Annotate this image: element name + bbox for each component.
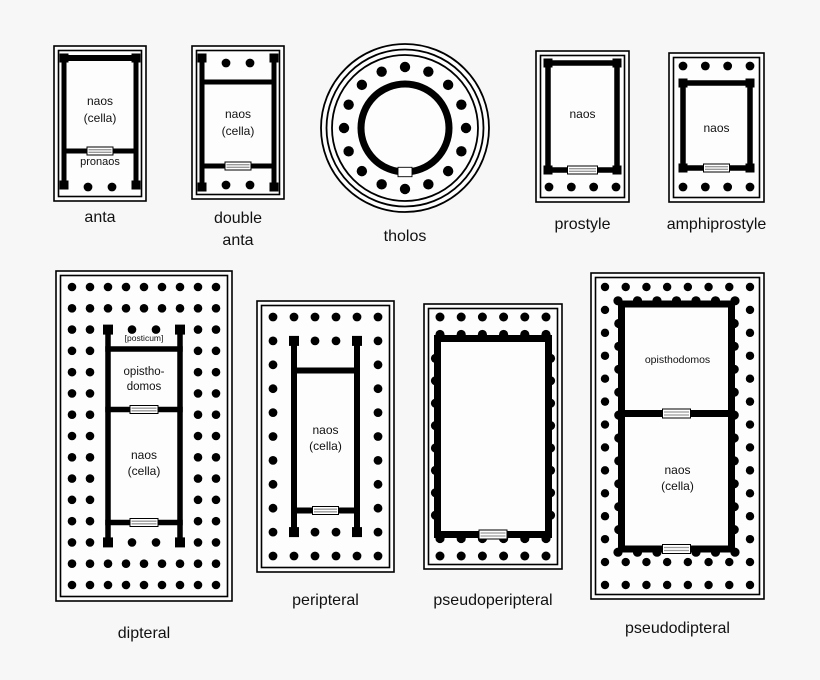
wall bbox=[747, 80, 753, 171]
column-dot bbox=[212, 432, 221, 441]
engaged-column bbox=[614, 365, 623, 374]
column-dot bbox=[68, 517, 77, 526]
engaged-column bbox=[541, 534, 550, 543]
column-dot bbox=[520, 313, 529, 322]
column-dot bbox=[84, 183, 93, 192]
engaged-column bbox=[499, 330, 508, 339]
column-dot bbox=[194, 432, 203, 441]
column-dot bbox=[601, 535, 609, 543]
engaged-column bbox=[541, 330, 550, 339]
column-dot bbox=[176, 304, 185, 313]
column-dot bbox=[68, 474, 77, 483]
column-dot bbox=[86, 496, 95, 505]
wall bbox=[728, 301, 735, 553]
engaged-column bbox=[613, 296, 622, 305]
engaged-column bbox=[652, 296, 661, 305]
plan-dipteral: [posticum] opistho- domos naos (cella) d… bbox=[55, 270, 233, 602]
column-dot bbox=[68, 559, 77, 568]
column-dot bbox=[612, 183, 621, 192]
door-opening bbox=[704, 164, 730, 172]
column-dot bbox=[212, 389, 221, 398]
column-dot bbox=[212, 538, 221, 547]
door-opening bbox=[313, 507, 339, 515]
column-dot bbox=[357, 80, 367, 90]
column-dot bbox=[212, 453, 221, 462]
column-dot bbox=[194, 368, 203, 377]
column-dot bbox=[128, 538, 137, 547]
column-dot bbox=[212, 559, 221, 568]
engaged-column bbox=[431, 511, 440, 520]
column-dot bbox=[478, 313, 487, 322]
column-dot bbox=[520, 552, 529, 561]
engaged-column bbox=[730, 319, 739, 328]
column-dot bbox=[68, 304, 77, 313]
caption-anta: anta bbox=[84, 207, 115, 229]
caption-prostyle: prostyle bbox=[554, 214, 610, 236]
wall bbox=[200, 56, 205, 190]
door-opening bbox=[225, 162, 251, 170]
engaged-column bbox=[730, 342, 739, 351]
pseudodipteral-plan-drawing bbox=[590, 272, 765, 600]
column-dot bbox=[246, 181, 255, 190]
engaged-column bbox=[691, 548, 700, 557]
column-dot bbox=[357, 166, 367, 176]
engaged-column bbox=[730, 479, 739, 488]
column-dot bbox=[176, 581, 185, 590]
engaged-column bbox=[431, 376, 440, 385]
door-opening bbox=[398, 167, 412, 176]
engaged-column bbox=[614, 479, 623, 488]
column-dot bbox=[746, 489, 754, 497]
column-dot bbox=[212, 496, 221, 505]
column-dot bbox=[68, 283, 77, 292]
column-dot bbox=[158, 304, 167, 313]
column-dot bbox=[194, 347, 203, 356]
column-dot bbox=[332, 337, 341, 346]
column-dot bbox=[663, 581, 671, 589]
column-dot bbox=[499, 313, 508, 322]
column-dot bbox=[212, 347, 221, 356]
column-dot bbox=[269, 480, 278, 489]
column-dot bbox=[374, 456, 383, 465]
column-dot bbox=[704, 581, 712, 589]
engaged-column bbox=[730, 525, 739, 534]
column-dot bbox=[68, 325, 77, 334]
column-dot bbox=[176, 283, 185, 292]
column-dot bbox=[68, 581, 77, 590]
column-dot bbox=[104, 304, 113, 313]
column-dot bbox=[212, 517, 221, 526]
column-dot bbox=[443, 80, 453, 90]
column-dot bbox=[140, 581, 149, 590]
column-dot bbox=[104, 559, 113, 568]
opisthodomos-label: opisthodomos bbox=[645, 354, 710, 367]
column-dot bbox=[86, 283, 95, 292]
caption-line-1: double bbox=[214, 208, 262, 230]
naos-label: naos bbox=[84, 93, 117, 110]
pseudodipteral-naos-label: naos (cella) bbox=[661, 462, 694, 494]
stylobate-outer-step bbox=[56, 271, 232, 601]
column-dot bbox=[68, 538, 77, 547]
column-dot bbox=[601, 466, 609, 474]
column-dot bbox=[86, 581, 95, 590]
engaged-column bbox=[546, 376, 555, 385]
engaged-column bbox=[633, 296, 642, 305]
engaged-column bbox=[431, 354, 440, 363]
column-dot bbox=[332, 313, 341, 322]
column-dot bbox=[376, 66, 386, 76]
column-dot bbox=[194, 410, 203, 419]
column-dot bbox=[601, 581, 609, 589]
column-dot bbox=[176, 559, 185, 568]
caption-amphiprostyle: amphiprostyle bbox=[667, 214, 767, 236]
column-dot bbox=[311, 337, 320, 346]
column-dot bbox=[158, 559, 167, 568]
column-dot bbox=[194, 517, 203, 526]
posticum-label: [posticum] bbox=[125, 333, 164, 343]
column-dot bbox=[701, 183, 710, 192]
column-dot bbox=[542, 313, 551, 322]
wall bbox=[545, 60, 620, 66]
column-dot bbox=[86, 453, 95, 462]
column-dot bbox=[746, 535, 754, 543]
column-dot bbox=[723, 183, 732, 192]
opisthodomos-line-1: opistho- bbox=[124, 365, 165, 380]
column-dot bbox=[86, 325, 95, 334]
column-dot bbox=[499, 552, 508, 561]
column-dot bbox=[601, 306, 609, 314]
column-dot bbox=[456, 99, 466, 109]
engaged-column bbox=[730, 296, 739, 305]
door-opening bbox=[568, 166, 598, 174]
column-dot bbox=[68, 432, 77, 441]
column-dot bbox=[269, 504, 278, 513]
naos-label: naos bbox=[703, 120, 729, 136]
wall bbox=[200, 80, 277, 85]
column-dot bbox=[140, 304, 149, 313]
column-dot bbox=[212, 474, 221, 483]
column-dot bbox=[269, 337, 278, 346]
engaged-column bbox=[730, 411, 739, 420]
cella-label: (cella) bbox=[222, 123, 255, 140]
column-dot bbox=[400, 62, 410, 72]
column-dot bbox=[86, 474, 95, 483]
column-dot bbox=[194, 389, 203, 398]
column-dot bbox=[374, 408, 383, 417]
column-dot bbox=[68, 368, 77, 377]
wall bbox=[434, 335, 552, 342]
engaged-column bbox=[652, 548, 661, 557]
column-dot bbox=[122, 581, 131, 590]
door-opening bbox=[130, 519, 158, 527]
column-dot bbox=[68, 496, 77, 505]
prostyle-plan-drawing bbox=[535, 50, 630, 203]
stylobate-outer-step bbox=[424, 304, 562, 569]
column-dot bbox=[704, 283, 712, 291]
cella-label: (cella) bbox=[661, 478, 694, 494]
engaged-column bbox=[520, 330, 529, 339]
wall bbox=[545, 335, 552, 538]
column-dot bbox=[601, 374, 609, 382]
engaged-column bbox=[435, 534, 444, 543]
engaged-column bbox=[431, 399, 440, 408]
column-dot bbox=[542, 552, 551, 561]
engaged-column bbox=[478, 330, 487, 339]
door-opening bbox=[663, 545, 691, 554]
engaged-column bbox=[614, 319, 623, 328]
column-dot bbox=[194, 283, 203, 292]
column-dot bbox=[374, 552, 383, 561]
column-dot bbox=[122, 304, 131, 313]
column-dot bbox=[684, 581, 692, 589]
opisthodomos-line-2: domos bbox=[124, 380, 165, 395]
anta-naos-label: naos (cella) bbox=[84, 93, 117, 127]
column-dot bbox=[725, 283, 733, 291]
column-dot bbox=[86, 538, 95, 547]
column-dot bbox=[376, 179, 386, 189]
column-dot bbox=[746, 512, 754, 520]
column-dot bbox=[400, 184, 410, 194]
caption-tholos: tholos bbox=[384, 226, 427, 248]
column-dot bbox=[269, 384, 278, 393]
wall bbox=[105, 327, 111, 545]
column-dot bbox=[269, 360, 278, 369]
anta-pier bbox=[198, 183, 207, 192]
column-dot bbox=[746, 352, 754, 360]
column-dot bbox=[443, 166, 453, 176]
column-dot bbox=[642, 283, 650, 291]
column-dot bbox=[339, 123, 349, 133]
column-dot bbox=[269, 552, 278, 561]
cella-label: (cella) bbox=[84, 110, 117, 127]
column-dot bbox=[290, 552, 299, 561]
column-dot bbox=[642, 558, 650, 566]
column-dot bbox=[601, 329, 609, 337]
column-dot bbox=[622, 283, 630, 291]
column-dot bbox=[746, 283, 754, 291]
plan-amphiprostyle: naos amphiprostyle bbox=[668, 52, 765, 203]
column-dot bbox=[290, 313, 299, 322]
engaged-column bbox=[546, 354, 555, 363]
wall bbox=[177, 327, 183, 545]
column-dot bbox=[701, 62, 710, 71]
engaged-column bbox=[614, 525, 623, 534]
engaged-column bbox=[730, 456, 739, 465]
column-dot bbox=[723, 62, 732, 71]
cella-label: (cella) bbox=[309, 438, 342, 454]
column-dot bbox=[746, 466, 754, 474]
caption-peripteral: peripteral bbox=[292, 590, 359, 612]
engaged-column bbox=[711, 548, 720, 557]
engaged-column bbox=[546, 399, 555, 408]
column-dot bbox=[746, 62, 755, 71]
column-dot bbox=[601, 283, 609, 291]
column-dot bbox=[704, 558, 712, 566]
column-dot bbox=[86, 410, 95, 419]
greek-temple-plans-diagram: naos (cella) pronaos anta naos (cella) d… bbox=[0, 0, 820, 680]
column-dot bbox=[194, 474, 203, 483]
column-dot bbox=[746, 397, 754, 405]
column-dot bbox=[86, 347, 95, 356]
column-dot bbox=[152, 538, 161, 547]
engaged-column bbox=[546, 511, 555, 520]
column-dot bbox=[642, 581, 650, 589]
column-dot bbox=[601, 558, 609, 566]
column-dot bbox=[374, 504, 383, 513]
column-dot bbox=[436, 552, 445, 561]
engaged-column bbox=[672, 296, 681, 305]
engaged-column bbox=[730, 502, 739, 511]
column-dot bbox=[86, 304, 95, 313]
caption-pseudoperipteral: pseudoperipteral bbox=[433, 590, 552, 612]
column-dot bbox=[212, 304, 221, 313]
column-dot bbox=[122, 283, 131, 292]
column-dot bbox=[374, 313, 383, 322]
door-opening bbox=[479, 530, 507, 539]
column-dot bbox=[140, 559, 149, 568]
column-dot bbox=[746, 374, 754, 382]
column-dot bbox=[158, 581, 167, 590]
column-dot bbox=[108, 183, 117, 192]
engaged-column bbox=[435, 330, 444, 339]
engaged-column bbox=[613, 548, 622, 557]
column-dot bbox=[86, 432, 95, 441]
column-dot bbox=[423, 179, 433, 189]
column-dot bbox=[725, 558, 733, 566]
column-dot bbox=[269, 432, 278, 441]
engaged-column bbox=[730, 433, 739, 442]
wall bbox=[680, 80, 686, 171]
naos-label: naos bbox=[569, 106, 595, 122]
column-dot bbox=[567, 183, 576, 192]
column-dot bbox=[246, 59, 255, 68]
column-dot bbox=[68, 347, 77, 356]
peripteral-naos-label: naos (cella) bbox=[309, 422, 342, 454]
engaged-column bbox=[614, 456, 623, 465]
engaged-column bbox=[614, 342, 623, 351]
column-dot bbox=[68, 410, 77, 419]
wall bbox=[680, 80, 753, 86]
engaged-column bbox=[633, 548, 642, 557]
column-dot bbox=[68, 453, 77, 462]
engaged-column bbox=[457, 330, 466, 339]
column-dot bbox=[663, 283, 671, 291]
column-dot bbox=[679, 62, 688, 71]
engaged-column bbox=[691, 296, 700, 305]
column-dot bbox=[746, 443, 754, 451]
column-dot bbox=[86, 389, 95, 398]
column-dot bbox=[222, 181, 231, 190]
tholos-plan-drawing bbox=[320, 43, 490, 213]
column-dot bbox=[212, 283, 221, 292]
naos-label: naos bbox=[661, 462, 694, 478]
column-dot bbox=[86, 368, 95, 377]
column-dot bbox=[212, 410, 221, 419]
engaged-column bbox=[546, 466, 555, 475]
column-dot bbox=[269, 528, 278, 537]
column-dot bbox=[725, 581, 733, 589]
column-dot bbox=[374, 337, 383, 346]
column-dot bbox=[663, 558, 671, 566]
engaged-column bbox=[730, 388, 739, 397]
dipteral-naos-label: naos (cella) bbox=[128, 447, 161, 479]
caption-line-2: anta bbox=[214, 230, 262, 252]
wall bbox=[545, 60, 551, 173]
column-dot bbox=[194, 453, 203, 462]
column-dot bbox=[194, 581, 203, 590]
column-dot bbox=[456, 146, 466, 156]
column-dot bbox=[684, 558, 692, 566]
column-dot bbox=[311, 552, 320, 561]
caption-pseudodipteral: pseudodipteral bbox=[625, 618, 730, 640]
column-dot bbox=[332, 552, 341, 561]
column-dot bbox=[746, 306, 754, 314]
wall bbox=[61, 55, 139, 61]
wall bbox=[614, 60, 620, 173]
wall bbox=[272, 56, 277, 190]
column-dot bbox=[601, 420, 609, 428]
column-dot bbox=[194, 496, 203, 505]
engaged-column bbox=[546, 421, 555, 430]
engaged-column bbox=[614, 433, 623, 442]
column-dot bbox=[353, 313, 362, 322]
column-dot bbox=[436, 313, 445, 322]
naos-label: naos bbox=[128, 447, 161, 463]
column-dot bbox=[86, 559, 95, 568]
wall bbox=[354, 338, 360, 535]
door-opening bbox=[87, 147, 113, 155]
column-dot bbox=[601, 443, 609, 451]
column-dot bbox=[269, 408, 278, 417]
column-dot bbox=[679, 183, 688, 192]
anta-pier bbox=[270, 54, 279, 63]
plan-prostyle: naos prostyle bbox=[535, 50, 630, 203]
column-dot bbox=[423, 66, 433, 76]
column-dot bbox=[746, 420, 754, 428]
plan-tholos: tholos bbox=[320, 43, 490, 213]
column-dot bbox=[269, 456, 278, 465]
column-dot bbox=[374, 528, 383, 537]
plan-anta: naos (cella) pronaos anta bbox=[53, 45, 147, 202]
column-dot bbox=[622, 558, 630, 566]
engaged-column bbox=[431, 466, 440, 475]
engaged-column bbox=[730, 365, 739, 374]
column-dot bbox=[589, 183, 598, 192]
column-dot bbox=[311, 528, 320, 537]
column-dot bbox=[622, 581, 630, 589]
engaged-column bbox=[457, 534, 466, 543]
column-dot bbox=[746, 183, 755, 192]
cella-label: (cella) bbox=[128, 463, 161, 479]
door-opening bbox=[130, 406, 158, 414]
engaged-column bbox=[431, 488, 440, 497]
wall bbox=[618, 301, 625, 553]
column-dot bbox=[601, 352, 609, 360]
column-dot bbox=[194, 559, 203, 568]
anta-pier bbox=[198, 54, 207, 63]
engaged-column bbox=[730, 548, 739, 557]
column-dot bbox=[374, 384, 383, 393]
column-dot bbox=[374, 360, 383, 369]
wall bbox=[105, 346, 183, 352]
column-dot bbox=[68, 389, 77, 398]
column-dot bbox=[601, 512, 609, 520]
anta-pier bbox=[270, 183, 279, 192]
engaged-column bbox=[711, 296, 720, 305]
column-dot bbox=[104, 283, 113, 292]
column-dot bbox=[343, 99, 353, 109]
engaged-column bbox=[546, 443, 555, 452]
